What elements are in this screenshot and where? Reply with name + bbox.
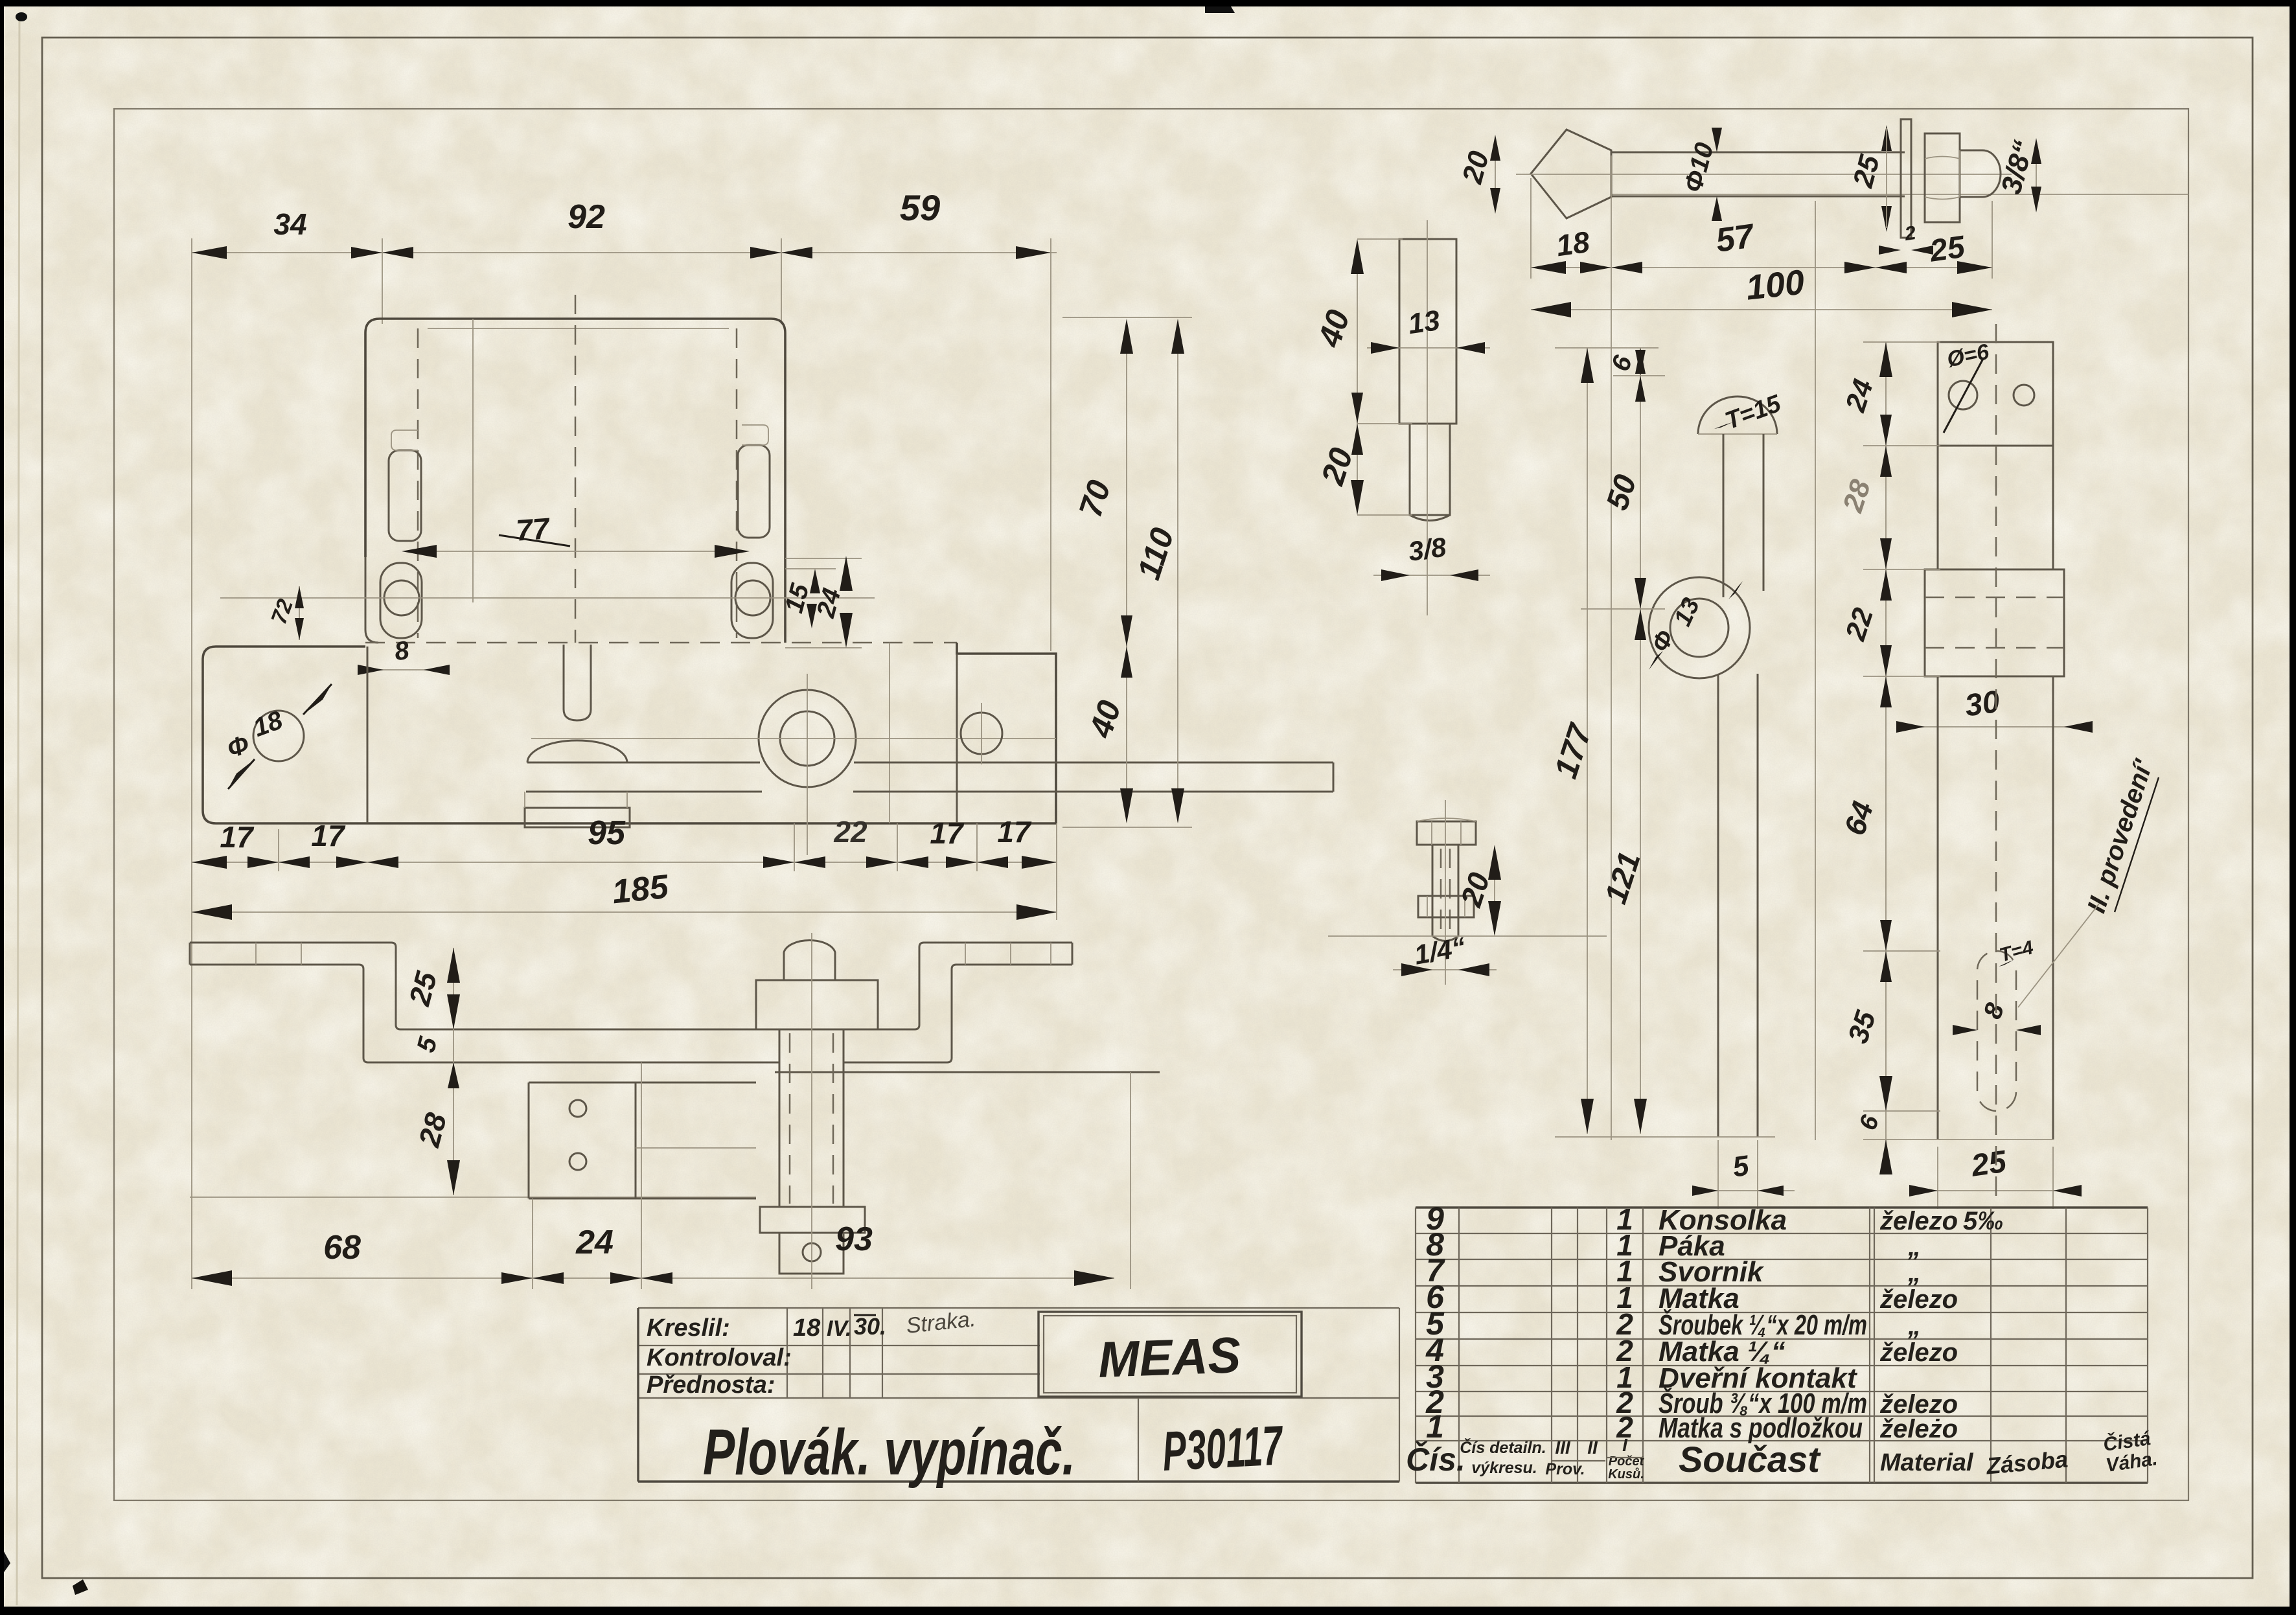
svg-text:IV.: IV. <box>827 1316 851 1341</box>
svg-text:185: 185 <box>610 868 671 911</box>
svg-text:25: 25 <box>1969 1145 2010 1184</box>
svg-text:1: 1 <box>1426 1408 1444 1445</box>
svg-text:P30117: P30117 <box>1161 1414 1285 1483</box>
svg-text:Kontroloval:: Kontroloval: <box>647 1344 792 1371</box>
svg-text:34: 34 <box>273 207 306 241</box>
svg-text:59: 59 <box>900 187 940 228</box>
svg-text:3/8: 3/8 <box>1406 531 1449 567</box>
svg-text:železo: železo <box>1879 1338 1958 1367</box>
svg-text:III: III <box>1555 1437 1571 1458</box>
svg-text:železo: železo <box>1879 1285 1958 1314</box>
svg-text:25: 25 <box>1927 230 1968 269</box>
svg-text:24: 24 <box>575 1224 614 1261</box>
svg-text:30.: 30. <box>854 1313 886 1340</box>
svg-text:68: 68 <box>323 1229 361 1266</box>
svg-text:Kusů.: Kusů. <box>1608 1467 1644 1482</box>
svg-text:57: 57 <box>1714 217 1757 260</box>
svg-text:18: 18 <box>1554 225 1592 263</box>
svg-text:Čís detailn.: Čís detailn. <box>1460 1437 1546 1457</box>
svg-text:95: 95 <box>588 814 626 852</box>
svg-text:MEAS: MEAS <box>1097 1326 1242 1388</box>
svg-text:„: „ <box>1907 1233 1921 1261</box>
svg-text:I: I <box>1622 1435 1628 1455</box>
svg-text:Prov.: Prov. <box>1545 1460 1585 1478</box>
svg-text:„: „ <box>1907 1312 1921 1340</box>
svg-text:13: 13 <box>1406 304 1441 340</box>
svg-text:17: 17 <box>311 819 346 853</box>
svg-text:92: 92 <box>568 198 605 236</box>
svg-text:„: „ <box>1907 1259 1921 1287</box>
svg-text:17: 17 <box>930 816 965 850</box>
svg-text:22: 22 <box>833 815 867 849</box>
svg-text:Material: Material <box>1880 1449 1974 1476</box>
svg-text:17: 17 <box>997 815 1032 849</box>
svg-text:100: 100 <box>1744 263 1806 308</box>
svg-text:výkresu.: výkresu. <box>1471 1459 1537 1477</box>
svg-text:železo 5‰: železo 5‰ <box>1879 1207 2003 1235</box>
svg-text:Čís.: Čís. <box>1406 1441 1465 1478</box>
svg-text:Součast: Součast <box>1679 1439 1821 1480</box>
svg-text:želeżo: želeżo <box>1879 1415 1958 1443</box>
svg-text:18: 18 <box>793 1314 821 1342</box>
svg-text:Kreslil:: Kreslil: <box>647 1314 730 1342</box>
svg-text:93: 93 <box>835 1220 873 1258</box>
svg-text:Plovák. vypínač.: Plovák. vypínač. <box>703 1416 1075 1489</box>
svg-text:Počet: Počet <box>1609 1454 1645 1469</box>
svg-text:17: 17 <box>220 820 255 854</box>
svg-text:Přednosta:: Přednosta: <box>647 1371 775 1399</box>
svg-text:II: II <box>1587 1437 1598 1458</box>
